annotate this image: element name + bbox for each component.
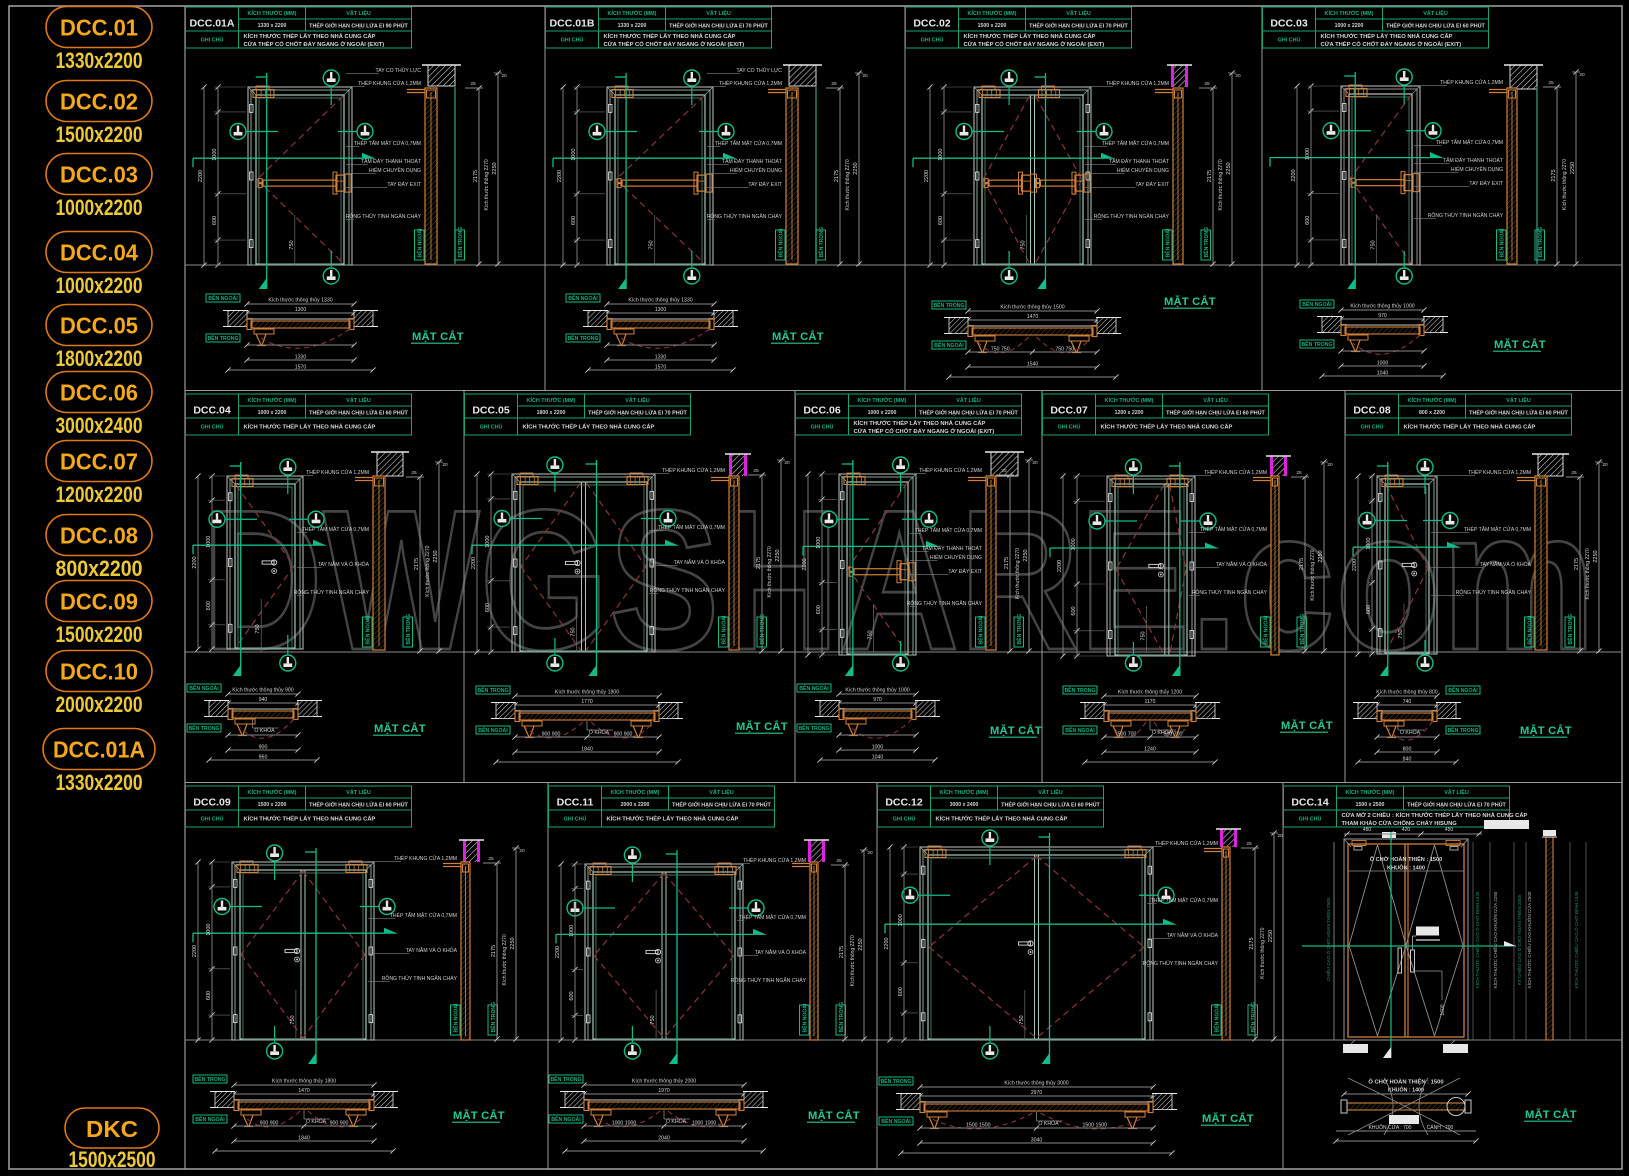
svg-text:600: 600 xyxy=(212,216,218,225)
svg-text:750: 750 xyxy=(290,1015,296,1024)
svg-text:DCC.05: DCC.05 xyxy=(472,405,510,417)
svg-text:GHI CHÚ: GHI CHÚ xyxy=(201,424,224,431)
svg-text:GHI CHÚ: GHI CHÚ xyxy=(893,816,916,823)
svg-text:1500 1500: 1500 1500 xyxy=(1082,1122,1107,1128)
svg-text:DCC.03: DCC.03 xyxy=(1270,18,1308,30)
svg-text:20: 20 xyxy=(1327,462,1333,468)
svg-text:2200: 2200 xyxy=(802,558,808,570)
svg-text:BÊN NGOÀI: BÊN NGOÀI xyxy=(934,341,964,349)
svg-text:BÊN TRONG: BÊN TRONG xyxy=(207,334,238,342)
svg-text:BÊN TRONG: BÊN TRONG xyxy=(1301,340,1332,348)
svg-text:THÉP GIỚI HẠN CHỊU LỬA EI 60 P: THÉP GIỚI HẠN CHỊU LỬA EI 60 PHÚT xyxy=(309,800,408,808)
svg-text:1000 1000: 1000 1000 xyxy=(612,1120,637,1126)
svg-text:2000x2200: 2000x2200 xyxy=(56,692,143,717)
svg-text:740: 740 xyxy=(1403,699,1412,705)
svg-text:2000 x 2200: 2000 x 2200 xyxy=(621,802,650,808)
svg-text:THÉP KHUNG CỬA 1,2MM: THÉP KHUNG CỬA 1,2MM xyxy=(662,467,725,474)
svg-text:20: 20 xyxy=(1235,73,1241,79)
svg-text:600: 600 xyxy=(938,216,944,225)
svg-text:GHI CHÚ: GHI CHÚ xyxy=(811,424,834,431)
svg-text:Kích thước thông thủy 1800: Kích thước thông thủy 1800 xyxy=(272,1078,336,1085)
svg-text:BÊN NGOÀI: BÊN NGOÀI xyxy=(1261,615,1269,644)
svg-text:KÍCH THƯỚC CHIỀU CAO KHUÔN CỬA: KÍCH THƯỚC CHIỀU CAO KHUÔN CỬA 2500 xyxy=(1526,891,1532,988)
svg-text:BÊN TRONG: BÊN TRONG xyxy=(1064,686,1095,694)
svg-text:VẬT LIỆU: VẬT LIỆU xyxy=(956,396,981,404)
svg-text:Kích thước thông thủy 800: Kích thước thông thủy 800 xyxy=(1376,689,1437,696)
svg-text:BÊN NGOÀI: BÊN NGOÀI xyxy=(551,1115,581,1123)
svg-text:HIỂM CHUYÊN DỤNG: HIỂM CHUYÊN DỤNG xyxy=(930,553,982,561)
svg-text:THÉP TẤM MẶT CỬA 0,7MM: THÉP TẤM MẶT CỬA 0,7MM xyxy=(658,524,725,531)
svg-text:BÊN NGOÀI: BÊN NGOÀI xyxy=(1448,686,1478,694)
svg-text:2175: 2175 xyxy=(1249,937,1255,949)
svg-text:VẬT LIỆU: VẬT LIỆU xyxy=(706,9,731,17)
svg-text:BÊN NGOÀI: BÊN NGOÀI xyxy=(800,1003,808,1032)
svg-text:1000: 1000 xyxy=(569,925,575,937)
svg-text:RÔNG THỦY TINH NGĂN CHÁY: RÔNG THỦY TINH NGĂN CHÁY xyxy=(1428,212,1504,219)
svg-text:3000x2400: 3000x2400 xyxy=(56,413,143,438)
svg-text:750: 750 xyxy=(1141,631,1147,640)
svg-text:2250: 2250 xyxy=(433,550,439,562)
svg-text:20: 20 xyxy=(1602,462,1608,468)
svg-text:RÔNG THỦY TINH NGĂN CHÁY: RÔNG THỦY TINH NGĂN CHÁY xyxy=(907,600,983,607)
svg-text:25: 25 xyxy=(1246,841,1252,847)
svg-text:VẬT LIỆU: VẬT LIỆU xyxy=(625,396,650,404)
svg-text:RÔNG THỦY TINH NGĂN CHÁY: RÔNG THỦY TINH NGĂN CHÁY xyxy=(294,589,370,596)
svg-text:GHI CHÚ: GHI CHÚ xyxy=(1299,816,1322,823)
svg-text:THAM KHẢO CỬA CHỐNG CHÁY HISUN: THAM KHẢO CỬA CHỐNG CHÁY HISUNG xyxy=(1342,820,1458,827)
svg-text:Kích thước thông thủy 1500: Kích thước thông thủy 1500 xyxy=(1000,304,1064,311)
svg-text:1000: 1000 xyxy=(816,537,822,549)
svg-text:KÍCH THƯỚC THÉP LẤY THEO NHÀ C: KÍCH THƯỚC THÉP LẤY THEO NHÀ CUNG CẤP xyxy=(854,419,986,427)
svg-text:THÉP KHUNG CỬA 1,2MM: THÉP KHUNG CỬA 1,2MM xyxy=(719,80,782,87)
svg-text:1800x2200: 1800x2200 xyxy=(56,346,143,371)
svg-text:Kích thước thông 2270: Kích thước thông 2270 xyxy=(767,546,773,597)
svg-text:750: 750 xyxy=(255,624,261,633)
svg-text:1800 x 2200: 1800 x 2200 xyxy=(537,410,566,416)
svg-text:2040: 2040 xyxy=(658,1135,670,1141)
svg-text:THÉP TẤM MẶT CỬA 0,7MM: THÉP TẤM MẶT CỬA 0,7MM xyxy=(739,914,806,921)
svg-text:THÉP TẤM MẶT CỬA 0,7MM: THÉP TẤM MẶT CỬA 0,7MM xyxy=(715,140,782,147)
svg-text:2250: 2250 xyxy=(858,938,864,950)
svg-text:DCC.01A: DCC.01A xyxy=(190,18,235,30)
svg-text:KT CHIỀU CAO Ô CHỜ HOÀN THIỆN: KT CHIỀU CAO Ô CHỜ HOÀN THIỆN 2505 xyxy=(1515,894,1522,985)
svg-text:CÁNH : 700: CÁNH : 700 xyxy=(1427,1124,1454,1131)
svg-text:Kích thước thông thủy 900: Kích thước thông thủy 900 xyxy=(232,687,293,694)
svg-text:1000: 1000 xyxy=(206,924,212,936)
svg-text:GHI CHÚ: GHI CHÚ xyxy=(561,37,584,44)
svg-text:GHI CHÚ: GHI CHÚ xyxy=(201,816,224,823)
svg-text:600: 600 xyxy=(1071,606,1077,615)
svg-text:2200: 2200 xyxy=(884,937,890,949)
svg-text:Kích thước thông thủy 3000: Kích thước thông thủy 3000 xyxy=(1004,1080,1068,1087)
svg-text:750: 750 xyxy=(1371,240,1377,249)
svg-text:KÍCH THƯỚC THÉP LẤY THEO NHÀ C: KÍCH THƯỚC THÉP LẤY THEO NHÀ CUNG CẤP xyxy=(1321,32,1453,40)
svg-text:BÊN TRONG: BÊN TRONG xyxy=(567,334,598,342)
svg-text:TAY ĐẨY EXIT: TAY ĐẨY EXIT xyxy=(387,181,421,188)
svg-text:BÊN NGOÀI: BÊN NGOÀI xyxy=(719,615,727,644)
svg-text:KÍCH THƯỚC (MM): KÍCH THƯỚC (MM) xyxy=(1346,788,1395,796)
svg-text:KÍCH THƯỚC (MM): KÍCH THƯỚC (MM) xyxy=(608,9,657,17)
svg-text:KÍCH THƯỚC (MM): KÍCH THƯỚC (MM) xyxy=(940,788,989,796)
svg-text:25: 25 xyxy=(1571,470,1577,476)
svg-text:THÉP KHUNG CỬA 1,2MM: THÉP KHUNG CỬA 1,2MM xyxy=(1106,80,1169,87)
svg-text:970: 970 xyxy=(873,697,882,703)
svg-text:2175: 2175 xyxy=(1299,558,1305,570)
svg-text:BÊN TRONG: BÊN TRONG xyxy=(1202,227,1210,258)
svg-text:900 900: 900 900 xyxy=(330,1120,349,1126)
svg-text:20: 20 xyxy=(442,462,448,468)
svg-text:1000: 1000 xyxy=(485,536,491,548)
svg-text:MẶT CẮT: MẶT CẮT xyxy=(1202,1112,1254,1125)
svg-text:20: 20 xyxy=(519,848,525,854)
svg-text:DCC.14: DCC.14 xyxy=(1291,797,1329,809)
svg-text:20: 20 xyxy=(501,73,507,79)
svg-text:KÍCH THƯỚC THÉP LẤY THEO NHÀ C: KÍCH THƯỚC THÉP LẤY THEO NHÀ CUNG CẤP xyxy=(523,423,655,431)
svg-text:BÊN NGOÀI: BÊN NGOÀI xyxy=(478,726,508,734)
svg-text:HIỂM CHUYÊN DỤNG: HIỂM CHUYÊN DỤNG xyxy=(1451,165,1503,173)
svg-text:2250: 2250 xyxy=(1268,930,1274,942)
svg-text:3040: 3040 xyxy=(1031,1137,1043,1143)
svg-text:THÉP GIỚI HẠN CHỊU LỬA EI 70 P: THÉP GIỚI HẠN CHỊU LỬA EI 70 PHÚT xyxy=(919,408,1018,416)
svg-text:THÉP TẤM MẶT CỬA 0,7MM: THÉP TẤM MẶT CỬA 0,7MM xyxy=(1464,526,1531,533)
svg-text:1540: 1540 xyxy=(1027,361,1039,367)
svg-text:MẶT CẮT: MẶT CẮT xyxy=(1164,295,1216,308)
svg-text:TAY ĐẨY EXIT: TAY ĐẨY EXIT xyxy=(948,568,982,575)
svg-text:2175: 2175 xyxy=(473,170,479,182)
svg-text:RÔNG THỦY TINH NGĂN CHÁY: RÔNG THỦY TINH NGĂN CHÁY xyxy=(346,213,422,220)
svg-text:KÍCH THƯỚC (MM): KÍCH THƯỚC (MM) xyxy=(858,396,907,404)
svg-text:BÊN NGOÀI: BÊN NGOÀI xyxy=(799,684,829,692)
svg-text:TẤM ĐẨY THANH THOÁT: TẤM ĐẨY THANH THOÁT xyxy=(361,158,421,165)
svg-text:KÍCH THƯỚC (MM): KÍCH THƯỚC (MM) xyxy=(1408,396,1457,404)
svg-text:25: 25 xyxy=(1296,470,1302,476)
svg-text:TAY CO THỦY LỰC: TAY CO THỦY LỰC xyxy=(737,67,783,74)
svg-text:MẶT CẮT: MẶT CẮT xyxy=(1520,724,1572,737)
svg-text:BÊN NGOÀI: BÊN NGOÀI xyxy=(1065,726,1095,734)
svg-text:MẶT CẮT: MẶT CẮT xyxy=(412,330,464,343)
svg-text:1500 1500: 1500 1500 xyxy=(966,1122,991,1128)
svg-text:2970: 2970 xyxy=(1031,1090,1042,1096)
svg-text:2175: 2175 xyxy=(839,946,845,958)
svg-text:VẬT LIỆU: VẬT LIỆU xyxy=(1038,788,1063,796)
svg-text:1770: 1770 xyxy=(581,699,592,705)
svg-text:KÍCH THƯỚC (MM): KÍCH THƯỚC (MM) xyxy=(1105,396,1154,404)
svg-text:TAY NẮM VÀ Ổ KHÓA: TAY NẮM VÀ Ổ KHÓA xyxy=(755,948,807,956)
svg-text:BÊN TRONG: BÊN TRONG xyxy=(194,1075,225,1083)
svg-text:THÉP GIỚI HẠN CHỊU LỬA EI 60 P: THÉP GIỚI HẠN CHỊU LỬA EI 60 PHÚT xyxy=(1386,21,1485,29)
svg-text:1000x2200: 1000x2200 xyxy=(56,273,143,298)
svg-text:THÉP GIỚI HẠN CHỊU LỬA EI 60 P: THÉP GIỚI HẠN CHỊU LỬA EI 60 PHÚT xyxy=(1469,408,1568,416)
svg-text:GHI CHÚ: GHI CHÚ xyxy=(201,37,224,44)
svg-text:KÍCH THƯỚC (MM): KÍCH THƯỚC (MM) xyxy=(248,396,297,404)
svg-text:2175: 2175 xyxy=(491,945,497,957)
svg-text:1600: 1600 xyxy=(1440,1004,1446,1015)
svg-text:BÊN TRONG: BÊN TRONG xyxy=(477,686,508,694)
svg-text:HIỂM CHUYÊN DỤNG: HIỂM CHUYÊN DỤNG xyxy=(1117,166,1169,174)
svg-text:HIỂM CHUYÊN DỤNG: HIỂM CHUYÊN DỤNG xyxy=(730,166,782,174)
svg-text:750: 750 xyxy=(649,240,655,249)
svg-text:TẤM ĐẨY THANH THOÁT: TẤM ĐẨY THANH THOÁT xyxy=(722,158,782,165)
svg-text:BÊN NGOÀI: BÊN NGOÀI xyxy=(881,1117,911,1125)
svg-text:800: 800 xyxy=(1403,746,1412,752)
svg-text:CỬA THÉP CÓ CHỐT ĐẨY NGANG Ở N: CỬA THÉP CÓ CHỐT ĐẨY NGANG Ở NGOÀI (EXIT… xyxy=(604,40,745,48)
svg-text:25: 25 xyxy=(836,858,842,864)
svg-text:2200: 2200 xyxy=(924,170,930,182)
svg-text:2175: 2175 xyxy=(834,170,840,182)
svg-text:1000: 1000 xyxy=(1366,538,1372,550)
svg-text:KHUÔN : 1400: KHUÔN : 1400 xyxy=(1387,864,1425,872)
svg-text:Kích thước thông thủy 1330: Kích thước thông thủy 1330 xyxy=(268,297,332,304)
svg-text:Ô CHỜ HOÀN THIỆN : 1500: Ô CHỜ HOÀN THIỆN : 1500 xyxy=(1368,1078,1443,1086)
svg-text:DCC.11: DCC.11 xyxy=(557,797,594,809)
svg-text:500 700: 500 700 xyxy=(1164,731,1183,737)
svg-text:KÍCH THƯỚC (MM): KÍCH THƯỚC (MM) xyxy=(248,788,297,796)
svg-text:GHI CHÚ: GHI CHÚ xyxy=(1058,424,1081,431)
svg-text:500 700: 500 700 xyxy=(1118,731,1137,737)
svg-text:600: 600 xyxy=(485,603,491,612)
svg-text:420: 420 xyxy=(1402,827,1411,833)
svg-text:KÍCH THƯỚC (MM): KÍCH THƯỚC (MM) xyxy=(968,9,1017,17)
svg-text:480: 480 xyxy=(1363,827,1372,833)
svg-text:20: 20 xyxy=(1579,72,1585,78)
svg-text:THÉP KHUNG CỬA 1,2MM: THÉP KHUNG CỬA 1,2MM xyxy=(1468,469,1531,476)
svg-text:1040: 1040 xyxy=(872,754,884,760)
svg-text:1000: 1000 xyxy=(206,536,212,548)
svg-text:THÉP TẤM MẶT CỬA 0,7MM: THÉP TẤM MẶT CỬA 0,7MM xyxy=(1436,139,1503,146)
svg-text:20: 20 xyxy=(867,850,873,856)
svg-text:TAY NẮM VÀ Ổ KHÓA: TAY NẮM VÀ Ổ KHÓA xyxy=(1480,560,1532,568)
svg-text:THÉP TẤM MẶT CỬA 0,7MM: THÉP TẤM MẶT CỬA 0,7MM xyxy=(302,526,369,533)
svg-text:600: 600 xyxy=(206,991,212,1000)
svg-text:1570: 1570 xyxy=(655,364,667,370)
svg-text:BÊN NGOÀI: BÊN NGOÀI xyxy=(208,294,238,302)
svg-text:1300: 1300 xyxy=(295,307,306,313)
svg-text:KÍCH THƯỚC CHIỀU CAO KHUÔN CỬA: KÍCH THƯỚC CHIỀU CAO KHUÔN CỬA 2250 xyxy=(1492,891,1498,988)
svg-text:2200: 2200 xyxy=(557,170,563,182)
svg-text:KÍCH THƯỚC THÉP LẤY THEO NHÀ C: KÍCH THƯỚC THÉP LẤY THEO NHÀ CUNG CẤP xyxy=(1404,423,1536,431)
svg-text:KÍCH THƯỚC CHIỀU CAO Ô CHỜ ĐỊN: KÍCH THƯỚC CHIỀU CAO Ô CHỜ ĐỊNH 2445 xyxy=(1474,891,1480,988)
svg-text:1000 1000: 1000 1000 xyxy=(692,1120,717,1126)
svg-text:TAY CO THỦY LỰC: TAY CO THỦY LỰC xyxy=(376,67,422,74)
svg-text:RÔNG THỦY TINH NGĂN CHÁY: RÔNG THỦY TINH NGĂN CHÁY xyxy=(1143,960,1219,967)
svg-text:RÔNG THỦY TINH NGĂN CHÁY: RÔNG THỦY TINH NGĂN CHÁY xyxy=(1094,213,1170,220)
svg-text:1500x2500: 1500x2500 xyxy=(69,1147,156,1172)
svg-text:BÊN TRONG: BÊN TRONG xyxy=(817,227,825,258)
svg-text:1200 x 2200: 1200 x 2200 xyxy=(1115,410,1144,416)
svg-text:1000: 1000 xyxy=(898,914,904,926)
svg-text:2175: 2175 xyxy=(1551,169,1557,181)
svg-text:RÔNG THỦY TINH NGĂN CHÁY: RÔNG THỦY TINH NGĂN CHÁY xyxy=(382,975,458,982)
svg-text:2250: 2250 xyxy=(510,937,516,949)
svg-text:600: 600 xyxy=(898,987,904,996)
svg-text:970: 970 xyxy=(1378,313,1387,319)
svg-text:1000x2200: 1000x2200 xyxy=(56,195,143,220)
svg-text:RÔNG THỦY TINH NGĂN CHÁY: RÔNG THỦY TINH NGĂN CHÁY xyxy=(707,213,783,220)
svg-text:2250: 2250 xyxy=(1318,550,1324,562)
svg-text:2200: 2200 xyxy=(198,170,204,182)
svg-text:Kích thước thông 2270: Kích thước thông 2270 xyxy=(850,935,856,986)
svg-text:MẶT CẮT: MẶT CẮT xyxy=(374,722,426,735)
svg-text:DCC.07: DCC.07 xyxy=(60,449,138,475)
svg-text:2200: 2200 xyxy=(471,557,477,569)
svg-text:TAY NẮM VÀ Ổ KHÓA: TAY NẮM VÀ Ổ KHÓA xyxy=(1216,560,1268,568)
svg-text:840: 840 xyxy=(1403,756,1412,762)
svg-text:900 900: 900 900 xyxy=(614,731,633,737)
svg-text:MẶT CẮT: MẶT CẮT xyxy=(808,1109,860,1122)
svg-text:Kích thước thông 2270: Kích thước thông 2270 xyxy=(1585,548,1591,599)
svg-text:DCC.02: DCC.02 xyxy=(60,89,138,115)
svg-text:THÉP GIỚI HẠN CHỊU LỬA EI 60 P: THÉP GIỚI HẠN CHỊU LỬA EI 60 PHÚT xyxy=(309,408,408,416)
svg-text:1240: 1240 xyxy=(1144,746,1156,752)
svg-text:DCC.08: DCC.08 xyxy=(60,523,138,549)
svg-text:KÍCH THƯỚC THÉP LẤY THEO NHÀ C: KÍCH THƯỚC THÉP LẤY THEO NHÀ CUNG CẤP xyxy=(607,815,739,823)
svg-text:VẬT LIỆU: VẬT LIỆU xyxy=(1423,9,1448,17)
svg-text:RÔNG THỦY TINH NGĂN CHÁY: RÔNG THỦY TINH NGĂN CHÁY xyxy=(1456,589,1532,596)
svg-text:450: 450 xyxy=(1445,827,1454,833)
svg-text:TẤM ĐẨY THANH THOÁT: TẤM ĐẨY THANH THOÁT xyxy=(922,545,982,552)
svg-text:THÉP GIỚI HẠN CHỊU LỬA EI 60 P: THÉP GIỚI HẠN CHỊU LỬA EI 60 PHÚT xyxy=(1001,800,1100,808)
svg-text:MẶT CẮT: MẶT CẮT xyxy=(1494,338,1546,351)
svg-text:1330: 1330 xyxy=(655,354,667,360)
svg-text:VẬT LIỆU: VẬT LIỆU xyxy=(346,9,371,17)
svg-text:CỬA THÉP CÓ CHỐT ĐẨY NGANG Ở N: CỬA THÉP CÓ CHỐT ĐẨY NGANG Ở NGOÀI (EXIT… xyxy=(244,40,385,48)
svg-text:750: 750 xyxy=(289,240,295,249)
svg-text:750: 750 xyxy=(570,627,576,636)
svg-text:TAY ĐẨY EXIT: TAY ĐẨY EXIT xyxy=(1469,180,1503,187)
svg-text:600: 600 xyxy=(571,216,577,225)
svg-text:CỬA THÉP CÓ CHỐT ĐẨY NGANG Ở N: CỬA THÉP CÓ CHỐT ĐẨY NGANG Ở NGOÀI (EXIT… xyxy=(1321,40,1462,48)
svg-text:750: 750 xyxy=(1019,1015,1025,1024)
svg-text:KÍCH THƯỚC (MM): KÍCH THƯỚC (MM) xyxy=(611,788,660,796)
svg-text:DCC.04: DCC.04 xyxy=(193,405,231,417)
svg-text:BÊN NGOÀI: BÊN NGOÀI xyxy=(976,615,984,644)
svg-text:2250: 2250 xyxy=(492,162,498,174)
svg-text:Kích thước thông 2270: Kích thước thông 2270 xyxy=(425,545,431,596)
svg-text:25: 25 xyxy=(1001,468,1007,474)
svg-text:TẤM ĐẨY THANH THOÁT: TẤM ĐẨY THANH THOÁT xyxy=(1109,158,1169,165)
svg-text:600: 600 xyxy=(1366,605,1372,614)
svg-text:2250: 2250 xyxy=(1226,162,1232,174)
svg-text:750: 750 xyxy=(650,1015,656,1024)
svg-text:1000: 1000 xyxy=(571,149,577,161)
svg-text:Kích thước thông 2270: Kích thước thông 2270 xyxy=(1562,159,1568,210)
svg-text:GHI CHÚ: GHI CHÚ xyxy=(480,424,503,431)
svg-text:Kích thước thông 2270: Kích thước thông 2270 xyxy=(1310,549,1316,600)
svg-text:DCC.10: DCC.10 xyxy=(60,659,138,685)
svg-text:RÔNG THỦY TINH NGĂN CHÁY: RÔNG THỦY TINH NGĂN CHÁY xyxy=(1192,589,1268,596)
svg-text:RÔNG THỦY TINH NGĂN CHÁY: RÔNG THỦY TINH NGĂN CHÁY xyxy=(650,587,726,594)
svg-text:KÍCH THƯỚC (MM): KÍCH THƯỚC (MM) xyxy=(527,396,576,404)
svg-text:Kích thước thông 2270: Kích thước thông 2270 xyxy=(484,159,490,210)
svg-text:DCC.03: DCC.03 xyxy=(60,162,138,188)
svg-text:BÊN TRONG: BÊN TRONG xyxy=(933,301,964,309)
svg-text:BÊN NGOÀI: BÊN NGOÀI xyxy=(415,228,423,257)
svg-text:DCC.02: DCC.02 xyxy=(913,18,951,30)
svg-text:BÊN TRONG: BÊN TRONG xyxy=(1447,726,1478,734)
svg-text:1300: 1300 xyxy=(655,307,666,313)
svg-text:RÔNG THỦY TINH NGĂN CHÁY: RÔNG THỦY TINH NGĂN CHÁY xyxy=(731,977,807,984)
svg-text:KÍCH THƯỚC THÉP LẤY THEO NHÀ C: KÍCH THƯỚC THÉP LẤY THEO NHÀ CUNG CẤP xyxy=(244,423,376,431)
svg-text:THÉP KHUNG CỬA 1,2MM: THÉP KHUNG CỬA 1,2MM xyxy=(394,855,457,862)
svg-text:2250: 2250 xyxy=(1593,550,1599,562)
svg-text:MẶT CẮT: MẶT CẮT xyxy=(736,720,788,733)
svg-text:VẬT LIỆU: VẬT LIỆU xyxy=(346,396,371,404)
svg-text:1470: 1470 xyxy=(1027,314,1038,320)
svg-text:600: 600 xyxy=(569,991,575,1000)
svg-text:CỬA MỞ 2 CHIỀU : KÍCH THƯỚC TH: CỬA MỞ 2 CHIỀU : KÍCH THƯỚC THÉP LẤY THE… xyxy=(1342,811,1528,819)
svg-text:2250: 2250 xyxy=(1023,549,1029,561)
svg-text:MẶT CẮT: MẶT CẮT xyxy=(453,1109,505,1122)
svg-text:DCC.01: DCC.01 xyxy=(60,15,138,41)
svg-text:1000: 1000 xyxy=(1071,538,1077,550)
svg-text:BÊN TRONG: BÊN TRONG xyxy=(1249,1002,1257,1033)
svg-text:VẬT LIỆU: VẬT LIỆU xyxy=(1203,396,1228,404)
svg-text:Kích thước thông thủy 1000: Kích thước thông thủy 1000 xyxy=(845,687,909,694)
svg-text:KÍCH THƯỚC THÉP LẤY THEO NHÀ C: KÍCH THƯỚC THÉP LẤY THEO NHÀ CUNG CẤP xyxy=(1101,423,1233,431)
svg-text:MẶT CẮT: MẶT CẮT xyxy=(1525,1108,1577,1121)
svg-text:25: 25 xyxy=(1204,81,1210,87)
svg-text:BÊN NGOÀI: BÊN NGOÀI xyxy=(451,1003,459,1032)
svg-text:GHI CHÚ: GHI CHÚ xyxy=(1361,424,1384,431)
svg-text:1000: 1000 xyxy=(938,149,944,161)
svg-text:HIỂM CHUYÊN DỤNG: HIỂM CHUYÊN DỤNG xyxy=(369,166,421,174)
svg-text:Kích thước thông thủy 1800: Kích thước thông thủy 1800 xyxy=(555,689,619,696)
svg-text:750: 750 xyxy=(1398,629,1404,638)
svg-text:TẤM ĐẨY THANH THOÁT: TẤM ĐẨY THANH THOÁT xyxy=(1443,157,1503,164)
svg-text:1970: 1970 xyxy=(658,1088,669,1094)
svg-text:BÊN NGOÀI: BÊN NGOÀI xyxy=(568,294,598,302)
svg-text:BÊN NGOÀI: BÊN NGOÀI xyxy=(1212,1003,1220,1032)
svg-text:BÊN TRONG: BÊN TRONG xyxy=(188,724,219,732)
svg-text:1840: 1840 xyxy=(298,1135,310,1141)
svg-text:TAY NẮM VÀ Ổ KHÓA: TAY NẮM VÀ Ổ KHÓA xyxy=(674,558,726,566)
svg-text:3000 x 2400: 3000 x 2400 xyxy=(950,802,979,808)
svg-text:Kích thước thông 2270: Kích thước thông 2270 xyxy=(1260,927,1266,978)
svg-text:25: 25 xyxy=(488,856,494,862)
svg-text:Ô CHỜ HOÀN THIỆN : 1500: Ô CHỜ HOÀN THIỆN : 1500 xyxy=(1370,855,1443,863)
svg-text:THÉP TẤM MẶT CỬA 0,7MM: THÉP TẤM MẶT CỬA 0,7MM xyxy=(1151,897,1218,904)
svg-text:THÉP GIỚI HẠN CHỊU LỬA EI 90 P: THÉP GIỚI HẠN CHỊU LỬA EI 90 PHÚT xyxy=(309,21,408,29)
svg-text:DCC.05: DCC.05 xyxy=(60,313,138,339)
svg-text:25: 25 xyxy=(470,81,476,87)
svg-text:KÍCH THƯỚC THÉP LẤY THEO NHÀ C: KÍCH THƯỚC THÉP LẤY THEO NHÀ CUNG CẤP xyxy=(604,32,736,40)
svg-text:THÉP GIỚI HẠN CHỊU LỬA EI 70 P: THÉP GIỚI HẠN CHỊU LỬA EI 70 PHÚT xyxy=(669,21,768,29)
svg-text:TAY NẮM VÀ Ổ KHÓA: TAY NẮM VÀ Ổ KHÓA xyxy=(406,946,458,954)
svg-text:900 900: 900 900 xyxy=(542,731,561,737)
svg-text:BÊN TRONG: BÊN TRONG xyxy=(550,1075,581,1083)
svg-text:BÊN NGOÀI: BÊN NGOÀI xyxy=(363,615,371,644)
svg-text:BÊN TRONG: BÊN TRONG xyxy=(798,724,829,732)
svg-text:960: 960 xyxy=(259,754,268,760)
svg-text:2200: 2200 xyxy=(1291,169,1297,181)
svg-text:1570: 1570 xyxy=(295,364,307,370)
svg-text:BÊN TRONG: BÊN TRONG xyxy=(456,227,464,258)
svg-text:750: 750 xyxy=(1021,240,1027,249)
svg-text:VẬT LIỆU: VẬT LIỆU xyxy=(1066,9,1091,17)
svg-text:750 750: 750 750 xyxy=(1055,346,1074,352)
svg-text:DCC.08: DCC.08 xyxy=(1353,405,1391,417)
svg-text:900 900: 900 900 xyxy=(260,1120,279,1126)
svg-text:750 750: 750 750 xyxy=(991,346,1010,352)
svg-text:1330: 1330 xyxy=(295,354,307,360)
svg-text:VẬT LIỆU: VẬT LIỆU xyxy=(1506,396,1531,404)
svg-text:2175: 2175 xyxy=(414,558,420,570)
svg-text:25: 25 xyxy=(753,468,759,474)
svg-text:DCC.04: DCC.04 xyxy=(60,240,138,266)
svg-text:DCC.12: DCC.12 xyxy=(885,797,923,809)
svg-text:2175: 2175 xyxy=(1004,557,1010,569)
svg-text:2250: 2250 xyxy=(775,549,781,561)
